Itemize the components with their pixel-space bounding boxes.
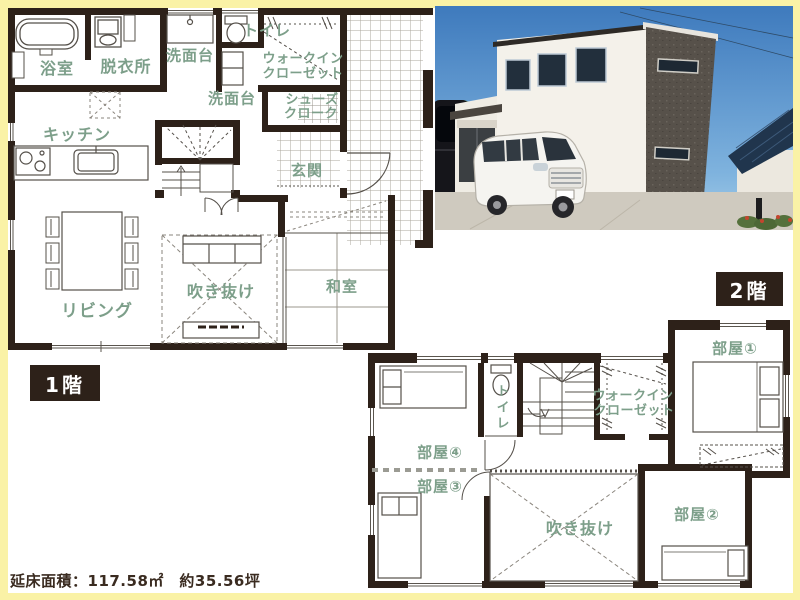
- room-label-wic-2f-line2: クローゼット: [593, 405, 674, 418]
- single-bed-icon-room4: [380, 366, 466, 408]
- room-label-room4: 部屋④: [417, 446, 463, 461]
- room-label-kitchen: キッチン: [43, 127, 111, 143]
- floor-badge-2f: 2階: [716, 272, 783, 306]
- room-label-shoes-line2: クローク: [284, 108, 338, 121]
- washstand-icon: [167, 15, 213, 43]
- floorplan-page: { "colors": { "background": "#faf2a6", "…: [0, 0, 800, 600]
- sofa-icon: [183, 236, 261, 263]
- floor-badge-1f: 1階: [30, 365, 100, 401]
- total-floor-area-text: 延床面積：117.58㎡ 約35.56坪: [10, 570, 260, 591]
- kitchen-counter: [14, 146, 148, 180]
- single-bed-icon-room2: [662, 546, 748, 580]
- tv-board-icon: [183, 322, 259, 338]
- porch-tiles: [347, 15, 423, 245]
- gas-stove-icon: [16, 148, 50, 175]
- room-label-void-2f: 吹き抜け: [546, 521, 614, 537]
- single-bed-icon-room3: [378, 493, 421, 578]
- room-label-bathroom: 浴室: [40, 61, 74, 77]
- washstand-cabinet-icon: [222, 52, 243, 85]
- room-label-void-1f: 吹き抜け: [187, 284, 255, 300]
- double-bed-icon-room1: [693, 362, 783, 432]
- exterior-photo: [432, 6, 793, 230]
- kitchen-sink-icon: [74, 146, 118, 174]
- room-label-washstand-2: 洗面台: [208, 92, 256, 107]
- room-label-washstand-1: 洗面台: [166, 49, 214, 64]
- room-label-toilet-2f: トイレ: [495, 384, 508, 432]
- room-label-toilet-1f: トイレ: [243, 24, 291, 39]
- room-label-japanese-room: 和室: [326, 280, 358, 295]
- room-label-entrance: 玄関: [291, 164, 323, 179]
- white-minivan: [474, 132, 586, 218]
- room-label-wic-2f-line1: ウォークイン: [592, 390, 673, 403]
- entrance-tiles: [277, 132, 340, 188]
- room-label-room1: 部屋①: [712, 342, 758, 357]
- room-label-shoes-line1: シューズ: [285, 94, 338, 107]
- room-label-dressing: 脱衣所: [100, 59, 151, 75]
- room-label-living: リビング: [61, 304, 133, 321]
- room-label-room3: 部屋③: [417, 480, 463, 495]
- room-label-room2: 部屋②: [674, 508, 720, 523]
- room-label-wic-1f-line2: クローゼット: [262, 68, 343, 81]
- room-label-wic-1f-line1: ウォークイン: [262, 53, 343, 66]
